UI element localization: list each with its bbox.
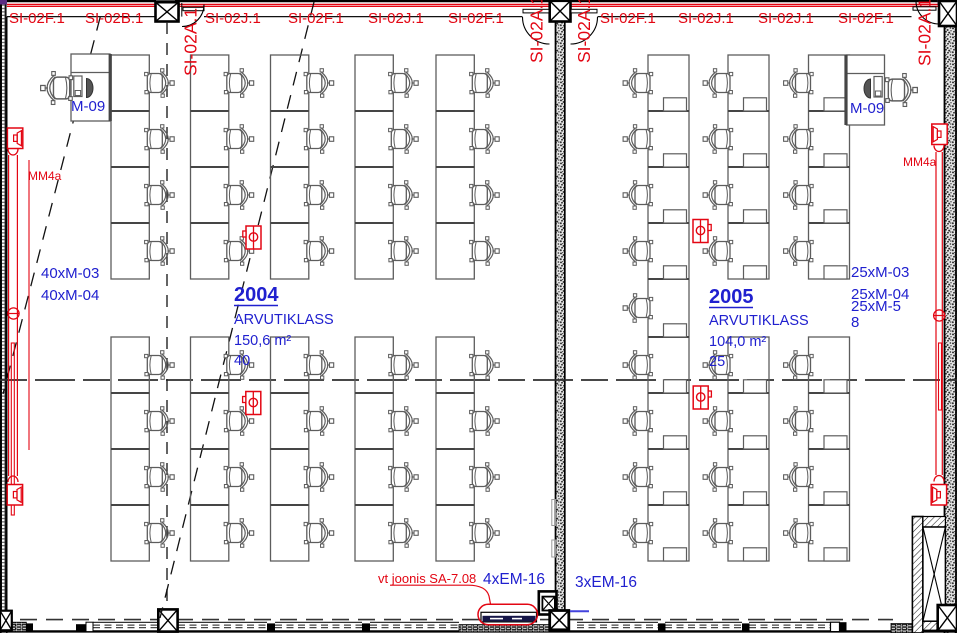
svg-text:SI-02F.1: SI-02F.1	[448, 10, 504, 27]
svg-text:ARVUTIKLASS: ARVUTIKLASS	[709, 313, 809, 329]
svg-text:25: 25	[709, 354, 725, 370]
svg-text:ARVUTIKLASS: ARVUTIKLASS	[234, 312, 334, 328]
svg-text:vt joonis SA-7.08: vt joonis SA-7.08	[378, 571, 476, 586]
svg-text:SI-02A.1: SI-02A.1	[181, 8, 201, 76]
svg-text:SI-02J.1: SI-02J.1	[368, 10, 424, 27]
svg-text:MM4a: MM4a	[903, 155, 937, 169]
svg-text:8: 8	[851, 314, 859, 331]
svg-text:25xM-03: 25xM-03	[851, 264, 909, 281]
svg-text:2004: 2004	[234, 284, 279, 306]
svg-text:SI-02J.1: SI-02J.1	[205, 10, 261, 27]
svg-text:SI-02J.1: SI-02J.1	[678, 10, 734, 27]
svg-text:40xM-04: 40xM-04	[41, 287, 99, 304]
svg-text:4xEM-16: 4xEM-16	[483, 571, 545, 588]
svg-text:40: 40	[234, 353, 250, 369]
svg-text:M-09: M-09	[850, 100, 884, 117]
svg-text:M-09: M-09	[71, 98, 105, 115]
svg-text:40xM-03: 40xM-03	[41, 265, 99, 282]
svg-text:SI-02A.1: SI-02A.1	[915, 0, 935, 66]
svg-text:104,0 m²: 104,0 m²	[709, 334, 766, 350]
svg-text:SI-02F.1: SI-02F.1	[838, 10, 894, 27]
svg-text:SI-02F.1: SI-02F.1	[600, 10, 656, 27]
svg-text:SI-02F.1: SI-02F.1	[288, 10, 344, 27]
svg-text:3xEM-16: 3xEM-16	[575, 574, 637, 591]
svg-text:SI-02A.1: SI-02A.1	[527, 0, 547, 63]
svg-text:2005: 2005	[709, 286, 754, 308]
svg-text:MM4a: MM4a	[28, 169, 62, 183]
svg-text:150,6 m²: 150,6 m²	[234, 333, 291, 349]
svg-text:SI-02J.1: SI-02J.1	[758, 10, 814, 27]
svg-text:SI-02F.1: SI-02F.1	[9, 10, 65, 27]
svg-text:25xM-5: 25xM-5	[851, 298, 901, 315]
svg-text:SI-02B.1: SI-02B.1	[85, 10, 143, 27]
svg-text:SI-02A.1: SI-02A.1	[574, 0, 594, 63]
